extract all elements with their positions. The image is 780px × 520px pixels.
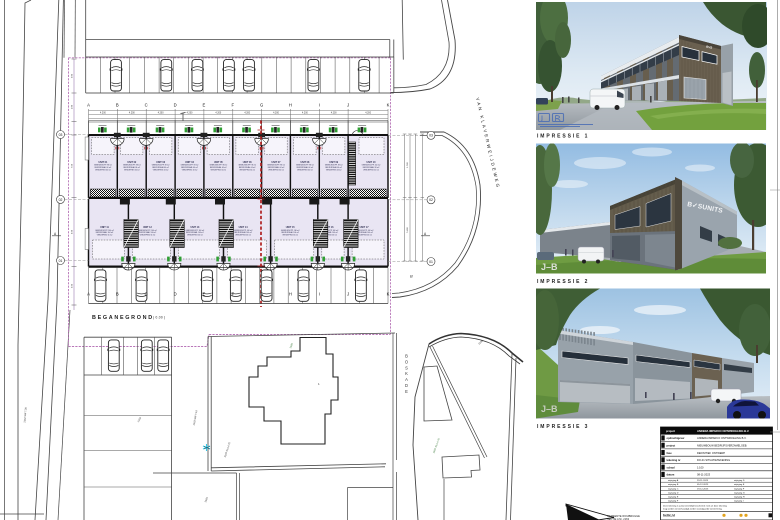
svg-text:C: C [145, 292, 148, 297]
svg-text:wijziging A: wijziging A [668, 479, 679, 482]
svg-text:K: K [387, 103, 390, 108]
svg-text:wijziging E: wijziging E [734, 484, 745, 486]
svg-text:4.200: 4.200 [273, 113, 279, 115]
svg-text:UNIT 02: UNIT 02 [127, 161, 137, 164]
svg-text:F: F [232, 292, 235, 297]
svg-text:VERDIEPING 34 m2: VERDIEPING 34 m2 [268, 169, 284, 171]
svg-text:UNIT 14: UNIT 14 [239, 226, 249, 229]
svg-text:IMPRESSIE 1: IMPRESSIE 1 [537, 134, 589, 140]
svg-text:4.200: 4.200 [244, 113, 250, 115]
svg-text:B: B [405, 354, 408, 359]
svg-text:02: 02 [429, 198, 433, 202]
svg-text:VERDIEPING 34 m2: VERDIEPING 34 m2 [95, 169, 111, 171]
svg-text:VERDIEPING 56 m2: VERDIEPING 56 m2 [356, 235, 372, 237]
svg-text:wijziging G: wijziging G [734, 492, 745, 494]
svg-text:08-11-2023: 08-11-2023 [697, 473, 711, 477]
svg-text:VERDIEPING 56 m2: VERDIEPING 56 m2 [97, 235, 113, 237]
svg-text:UNIT 17: UNIT 17 [360, 226, 370, 229]
svg-text:project: project [666, 429, 675, 433]
svg-text:BEGANEGROND: BEGANEGROND [92, 315, 154, 321]
svg-text:4.200: 4.200 [129, 113, 135, 115]
svg-text:wijziging I: wijziging I [734, 501, 744, 503]
svg-text:mag worden verveelvoudigd zond: mag worden verveelvoudigd zonder voorafg… [663, 507, 723, 510]
svg-text:ANDERA IMPARCO ONTWIKKELING B.: ANDERA IMPARCO ONTWIKKELING B.V. [697, 429, 749, 433]
svg-text:wijziging D: wijziging D [734, 480, 745, 482]
svg-text:4.200: 4.200 [365, 113, 371, 115]
svg-text:UNIT 07: UNIT 07 [272, 161, 282, 164]
svg-text:4.200: 4.200 [100, 113, 106, 115]
svg-text:VERDIEPING 34 m2: VERDIEPING 34 m2 [297, 169, 313, 171]
svg-text:4.200: 4.200 [302, 113, 308, 115]
svg-text:UNIT 12: UNIT 12 [143, 226, 153, 229]
svg-text:( 0.00 ): ( 0.00 ) [153, 316, 166, 320]
svg-text:H: H [289, 292, 292, 297]
svg-text:IMPRESSIE 2: IMPRESSIE 2 [537, 279, 589, 285]
svg-text:J–B: J–B [541, 404, 558, 414]
svg-text:A: A [87, 103, 90, 108]
svg-text:UNIT 10: UNIT 10 [367, 161, 377, 164]
svg-text:F: F [232, 103, 235, 108]
svg-text:D: D [405, 383, 408, 388]
svg-text:4.200: 4.200 [331, 113, 337, 115]
svg-text:K: K [387, 292, 390, 297]
svg-text:VERDIEPING 34 m2: VERDIEPING 34 m2 [211, 169, 227, 171]
svg-text:wijziging F: wijziging F [668, 501, 679, 503]
svg-text:opdrachtgever: opdrachtgever [667, 436, 685, 440]
svg-text:Deze tekening is auteursrechte: Deze tekening is auteursrechtelijk besch… [663, 504, 728, 507]
svg-text:UNIT 05: UNIT 05 [214, 161, 224, 164]
svg-text:D: D [174, 103, 177, 108]
svg-text:UNIT 03: UNIT 03 [156, 161, 166, 164]
svg-text:schaal: schaal [667, 465, 675, 469]
svg-text:VERDIEPING 56 m2: VERDIEPING 56 m2 [235, 235, 251, 237]
svg-text:UNIT 08: UNIT 08 [300, 161, 310, 164]
svg-text:VERDIEPING 56 m2: VERDIEPING 56 m2 [187, 235, 203, 237]
svg-text:DO-01 SITUATIETEKENING: DO-01 SITUATIETEKENING [697, 458, 730, 462]
svg-text:4.200: 4.200 [215, 113, 221, 115]
svg-text:I: I [319, 103, 320, 108]
svg-text:tekening nr: tekening nr [667, 458, 681, 462]
svg-text:03: 03 [429, 134, 433, 138]
svg-text:05-12-2023: 05-12-2023 [697, 484, 709, 486]
svg-text:UNIT 11: UNIT 11 [100, 226, 109, 229]
svg-text:4.200: 4.200 [158, 113, 164, 115]
svg-text:wijziging H: wijziging H [734, 497, 745, 499]
svg-text:project: project [667, 444, 676, 448]
svg-text:DEFINITIEF ONTWERP: DEFINITIEF ONTWERP [697, 451, 725, 455]
svg-text:A: A [87, 292, 90, 297]
svg-text:4.200: 4.200 [187, 113, 193, 115]
svg-text:S: S [405, 365, 408, 370]
svg-text:E: E [203, 103, 206, 108]
svg-text:wijziging F: wijziging F [734, 488, 745, 490]
svg-text:B: B [116, 292, 119, 297]
svg-text:G: G [260, 292, 263, 297]
svg-text:UNIT 04: UNIT 04 [185, 161, 195, 164]
svg-text:O: O [405, 359, 408, 364]
svg-text:datum: datum [667, 473, 675, 477]
svg-text:fase: fase [667, 451, 673, 455]
svg-text:helix.nl: helix.nl [663, 514, 675, 518]
svg-text:VERDIEPING 34 m2: VERDIEPING 34 m2 [326, 169, 342, 171]
svg-text:03: 03 [59, 133, 63, 137]
svg-text:B: B [410, 274, 413, 279]
svg-text:VERDIEPING 34 m2: VERDIEPING 34 m2 [124, 169, 140, 171]
svg-text:UNIT 13: UNIT 13 [190, 226, 200, 229]
svg-text:I: I [319, 292, 320, 297]
svg-text:H: H [289, 103, 292, 108]
svg-text:IMPRESSIE 3: IMPRESSIE 3 [537, 424, 589, 430]
svg-text:wijziging C: wijziging C [668, 488, 679, 490]
svg-text:E: E [203, 292, 206, 297]
svg-text:D: D [174, 292, 177, 297]
svg-text:19-12-2023: 19-12-2023 [697, 488, 709, 490]
svg-text:01: 01 [429, 260, 433, 264]
svg-text:wijziging B: wijziging B [668, 484, 679, 486]
svg-text:wijziging D: wijziging D [668, 492, 679, 494]
svg-text:K: K [405, 371, 408, 376]
svg-text:1.500: 1.500 [407, 161, 409, 167]
svg-text:B: B [116, 103, 119, 108]
svg-text:wijziging E: wijziging E [668, 497, 679, 499]
svg-text:UNIT 01: UNIT 01 [98, 161, 108, 164]
svg-text:VERDIEPING 34 m2: VERDIEPING 34 m2 [239, 169, 255, 171]
svg-text:UNIT 15: UNIT 15 [286, 226, 296, 229]
svg-text:VERDIEPING 34 m2: VERDIEPING 34 m2 [153, 169, 169, 171]
svg-text:29-11-2023: 29-11-2023 [697, 480, 709, 482]
svg-text:5.400: 5.400 [407, 226, 409, 232]
svg-text:J: J [347, 103, 349, 108]
svg-text:02: 02 [59, 198, 63, 202]
svg-text:NIEUWBOUW BEDRIJFSVERZAMELGEB.: NIEUWBOUW BEDRIJFSVERZAMELGEB. [697, 444, 747, 448]
svg-text:UNIT 06: UNIT 06 [243, 161, 253, 164]
svg-text:01: 01 [59, 259, 63, 263]
svg-text:C: C [145, 103, 148, 108]
svg-text:VERDIEPING 56 m2: VERDIEPING 56 m2 [140, 235, 156, 237]
svg-text:J: J [347, 292, 349, 297]
svg-text:ANDERA IMPARCO ONTWIKKELING B.: ANDERA IMPARCO ONTWIKKELING B.V. [697, 436, 747, 440]
svg-text:VERDIEPING 56 m2: VERDIEPING 56 m2 [282, 235, 298, 237]
svg-text:VERDIEPING 52 m2: VERDIEPING 52 m2 [363, 169, 379, 171]
svg-text:G: G [260, 103, 263, 108]
svg-text:1:100: 1:100 [697, 465, 704, 469]
svg-text:A: A [405, 377, 408, 382]
svg-text:UNIT 09: UNIT 09 [329, 161, 339, 164]
svg-text:J–B: J–B [541, 262, 558, 272]
svg-text:VERDIEPING 34 m2: VERDIEPING 34 m2 [182, 169, 198, 171]
svg-text:E: E [405, 389, 408, 394]
